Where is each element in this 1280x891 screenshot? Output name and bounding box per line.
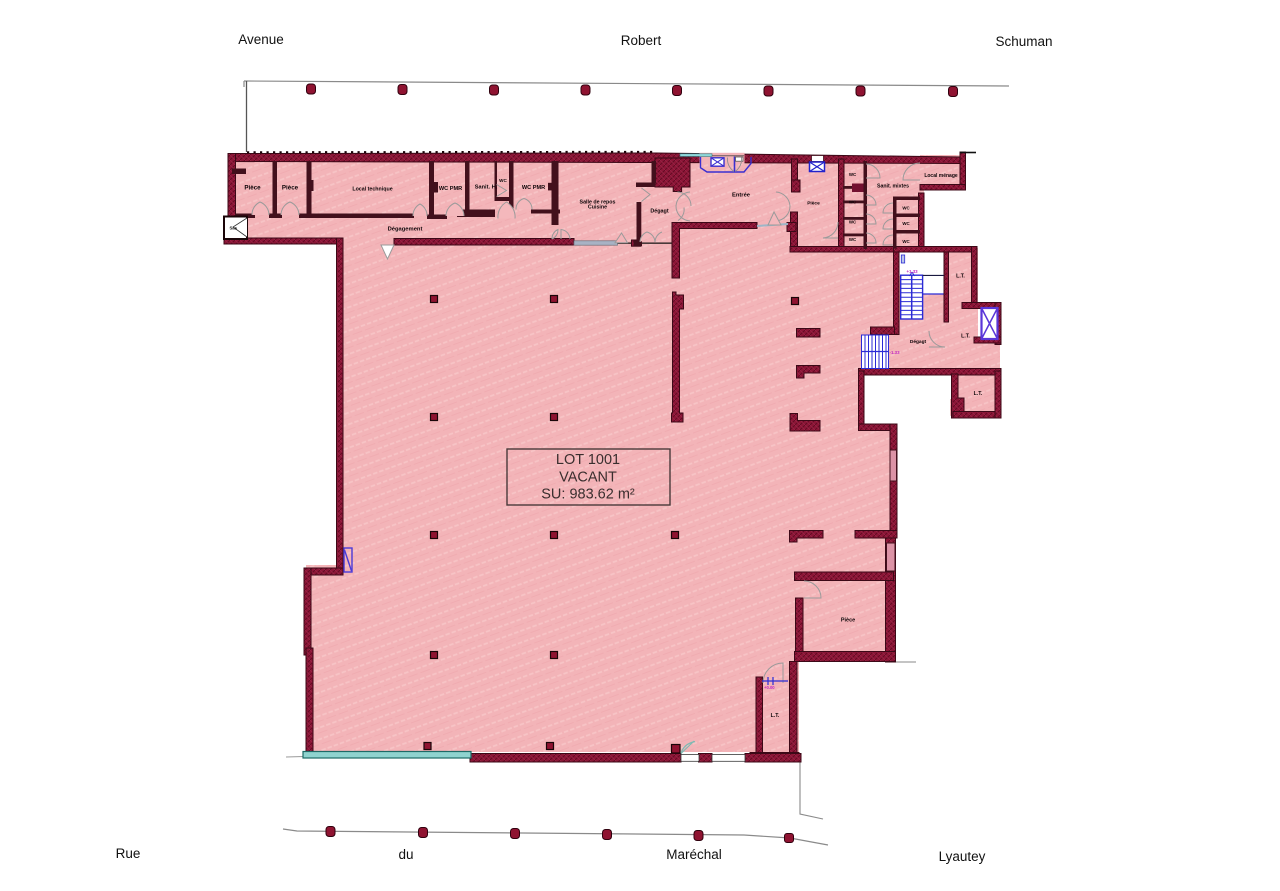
svg-text:L.T.: L.T. [974,391,983,397]
svg-text:WC: WC [849,200,857,205]
svg-text:+0.00: +0.00 [764,685,775,690]
svg-text:Cuisine: Cuisine [588,205,607,211]
svg-text:WC: WC [902,221,910,226]
svg-text:Entrée: Entrée [732,193,751,199]
svg-text:WC: WC [902,239,910,244]
svg-text:Robert: Robert [621,33,662,48]
svg-text:Pièce: Pièce [282,185,299,192]
svg-text:L.T.: L.T. [956,274,965,280]
svg-text:WC: WC [849,237,857,242]
svg-text:Maréchal: Maréchal [666,847,722,862]
svg-text:+1.33: +1.33 [907,269,919,274]
svg-text:LOT 1001: LOT 1001 [556,452,620,468]
svg-text:du: du [398,847,413,862]
svg-text:Dégagt: Dégagt [650,209,668,215]
svg-text:-1.33: -1.33 [890,350,901,355]
svg-text:VACANT: VACANT [559,470,617,486]
svg-text:WC: WC [902,206,910,211]
svg-text:Local ménage: Local ménage [924,173,958,179]
svg-text:WC PMR: WC PMR [522,185,545,191]
svg-text:Lyautey: Lyautey [939,849,986,864]
svg-text:Schuman: Schuman [995,34,1052,49]
svg-text:Sanit. mixtes: Sanit. mixtes [877,184,909,190]
svg-text:Sas: Sas [230,226,238,231]
svg-text:Local technique: Local technique [352,187,392,193]
svg-text:L.T.: L.T. [961,334,970,340]
svg-text:L.T.: L.T. [771,713,780,719]
svg-text:WC: WC [499,178,507,183]
svg-text:WC: WC [849,220,857,225]
svg-text:Pièce: Pièce [807,201,820,207]
svg-text:WC: WC [849,172,857,177]
svg-text:WC PMR: WC PMR [439,186,462,192]
svg-text:Sanit. H.: Sanit. H. [475,185,498,191]
svg-text:Avenue: Avenue [238,32,284,47]
svg-text:SU: 983.62 m²: SU: 983.62 m² [541,487,635,503]
svg-text:Dégagement: Dégagement [388,227,423,233]
svg-text:Pièce: Pièce [244,185,261,192]
svg-text:Dégagt: Dégagt [910,339,927,345]
svg-text:Rue: Rue [116,846,141,861]
svg-text:Pièce: Pièce [841,618,855,624]
